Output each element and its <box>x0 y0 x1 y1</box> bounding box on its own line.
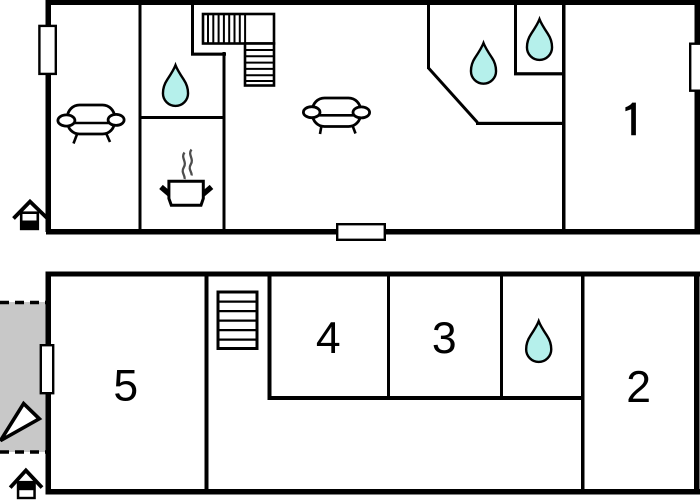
svg-text:3: 3 <box>432 314 457 363</box>
svg-text:4: 4 <box>316 314 341 363</box>
svg-text:2: 2 <box>626 363 651 412</box>
svg-text:5: 5 <box>113 362 138 411</box>
